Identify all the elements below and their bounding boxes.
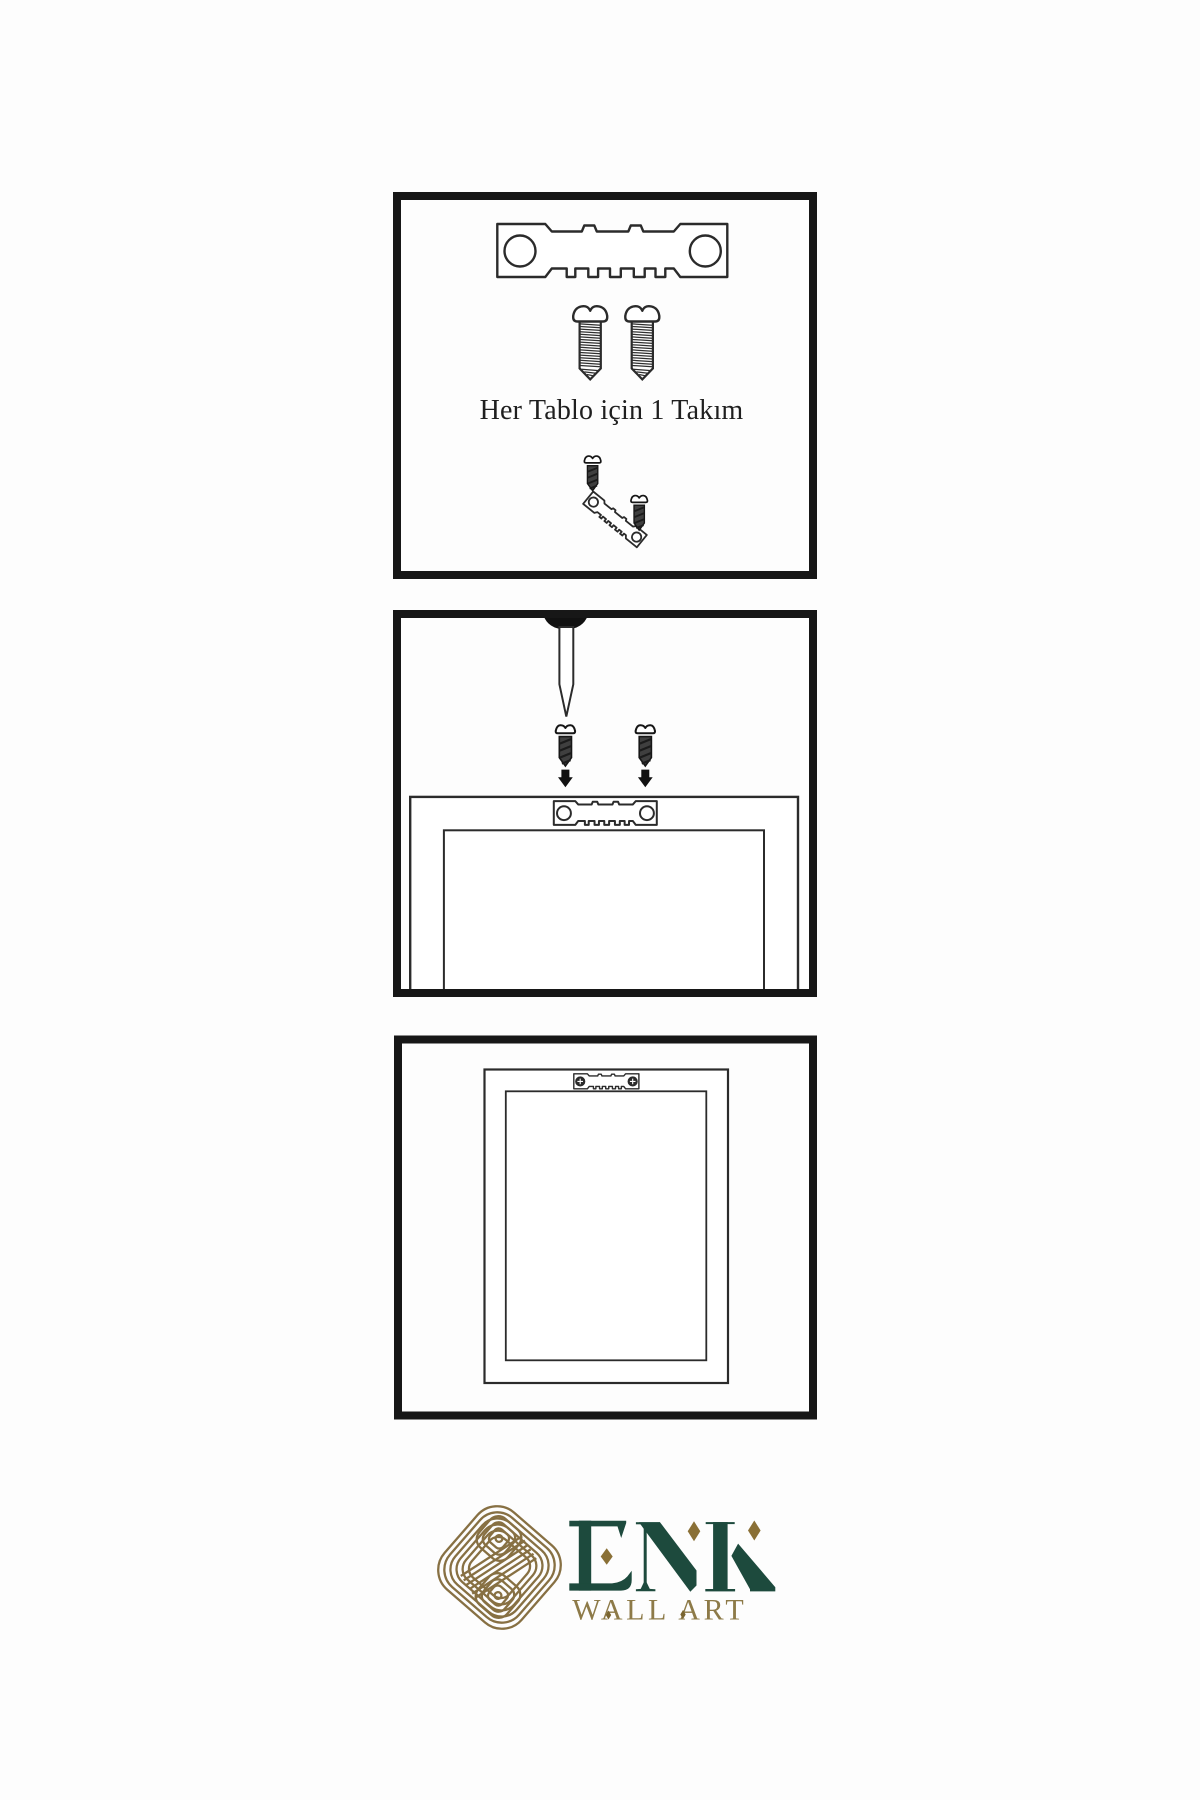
svg-text:WALL ART: WALL ART [572,1593,747,1626]
svg-text:Her Tablo için 1 Takım: Her Tablo için 1 Takım [480,395,744,426]
